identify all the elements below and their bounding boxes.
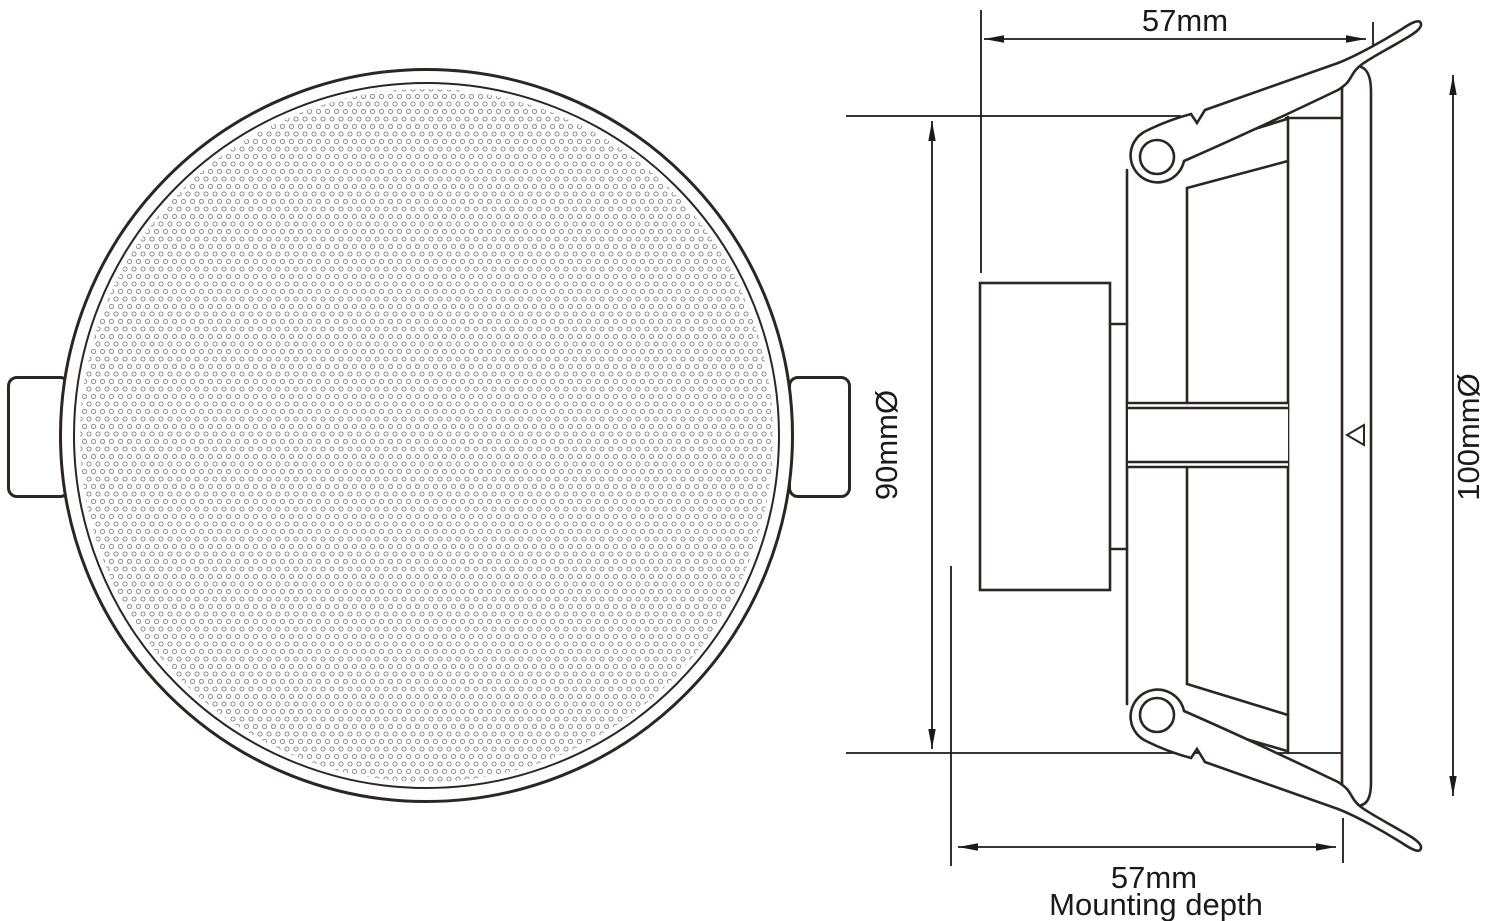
side-view-and-dimensions: 90mmØ 57mm 100mmØ xyxy=(0,0,1500,921)
clip-pivot-top xyxy=(1140,140,1174,174)
magnet xyxy=(980,283,1110,590)
spring-clip-top xyxy=(1131,21,1421,182)
dimension-sublabel: Mounting depth xyxy=(1049,887,1263,921)
drawing-canvas: 90mmØ 57mm 100mmØ xyxy=(0,0,1500,921)
dimension-label: 100mmØ xyxy=(1451,373,1486,500)
dimension-label: 90mmØ xyxy=(869,390,904,500)
dimension-outer-diameter: 100mmØ xyxy=(1451,75,1486,796)
side-view xyxy=(980,21,1421,850)
dimension-mounting-depth: 57mm Mounting depth xyxy=(951,566,1343,921)
spring-clip-bottom xyxy=(1131,690,1421,851)
clip-pivot-bottom xyxy=(1140,698,1174,732)
dimension-label: 57mm xyxy=(1142,3,1228,38)
pole-piece xyxy=(1127,403,1288,467)
